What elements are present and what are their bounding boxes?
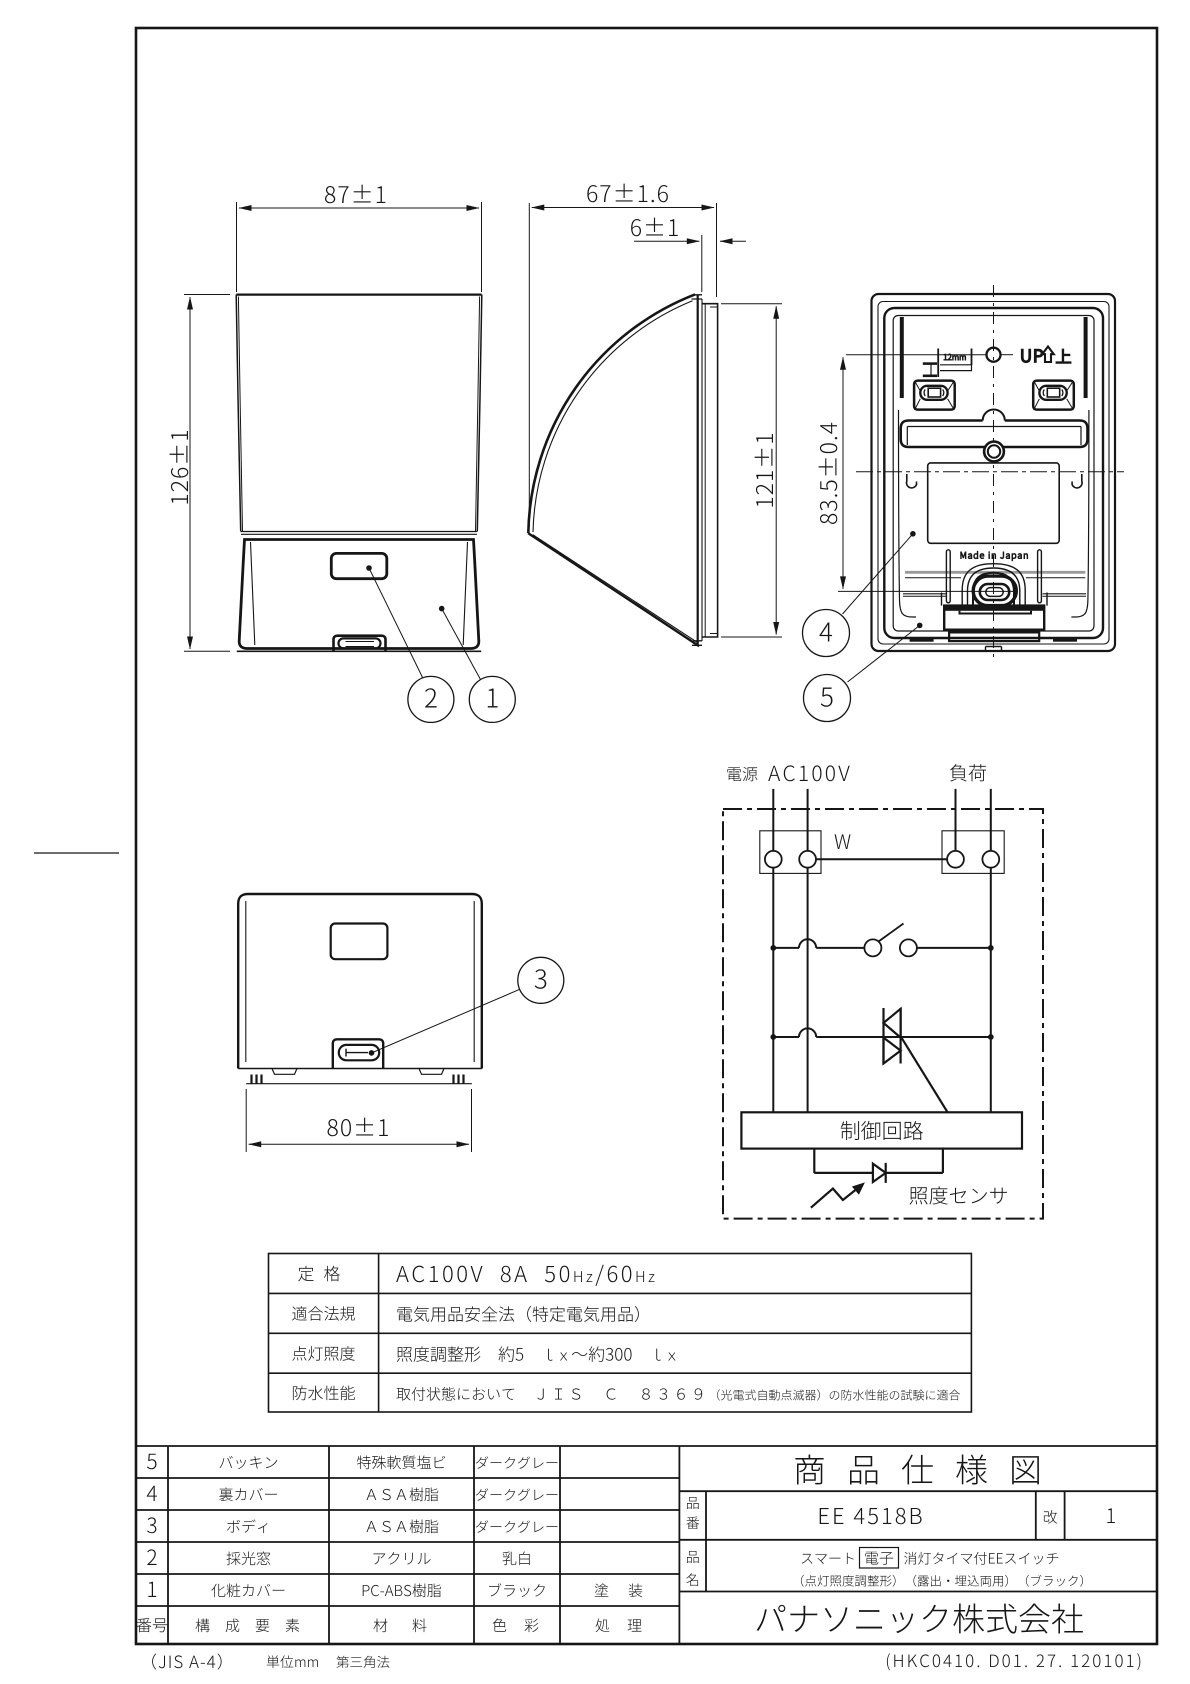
svg-text:PC-ABS樹脂: PC-ABS樹脂 (361, 1580, 442, 1601)
svg-text:取付状態において ＪＩＳ Ｃ ８３６９（光電式自動点滅器）の: 取付状態において ＪＩＳ Ｃ ８３６９（光電式自動点滅器）の防水性能の試験に適合 (396, 1384, 961, 1405)
svg-text:AC100V: AC100V (768, 758, 852, 788)
svg-text:2: 2 (424, 679, 438, 716)
svg-text:126±1: 126±1 (161, 428, 195, 505)
svg-text:5: 5 (820, 678, 834, 715)
svg-text:処理: 処理 (595, 1615, 659, 1636)
svg-text:4: 4 (146, 1478, 157, 1508)
svg-text:品: 品 (686, 1493, 700, 1513)
svg-text:（点灯照度調整形）（露出・埋込両用）（ブラック）: （点灯照度調整形）（露出・埋込両用）（ブラック） (792, 1571, 1092, 1590)
svg-text:AC100V 8A 50Hz/60Hz: AC100V 8A 50Hz/60Hz (396, 1257, 657, 1289)
svg-text:（JIS A-4）: （JIS A-4） (140, 1648, 235, 1673)
svg-text:上: 上 (1056, 344, 1072, 368)
svg-text:パナソニック株式会社: パナソニック株式会社 (754, 1593, 1084, 1641)
svg-text:ＡＳＡ樹脂: ＡＳＡ樹脂 (364, 1516, 439, 1537)
svg-text:改: 改 (1043, 1507, 1058, 1528)
svg-text:照度調整形 約5 ｌｘ〜約300 ｌｘ: 照度調整形 約5 ｌｘ〜約300 ｌｘ (396, 1341, 679, 1366)
svg-text:化粧カバー: 化粧カバー (211, 1580, 286, 1601)
svg-text:3: 3 (534, 960, 548, 997)
svg-text:適合法規: 適合法規 (291, 1301, 355, 1325)
svg-text:5: 5 (146, 1446, 157, 1476)
svg-text:構成要素: 構成要素 (195, 1615, 315, 1636)
svg-text:定格: 定格 (298, 1260, 350, 1285)
svg-text:消灯タイマ付EEスイッチ: 消灯タイマ付EEスイッチ (904, 1549, 1060, 1569)
svg-text:ダークグレー: ダークグレー (475, 1485, 559, 1505)
svg-text:6±1: 6±1 (630, 209, 681, 243)
svg-text:色彩: 色彩 (492, 1615, 556, 1636)
svg-text:採光窓: 採光窓 (226, 1548, 271, 1569)
svg-text:名: 名 (686, 1570, 700, 1590)
svg-text:防水性能: 防水性能 (291, 1380, 355, 1404)
svg-text:スマート: スマート (800, 1549, 856, 1569)
svg-text:ＡＳＡ樹脂: ＡＳＡ樹脂 (364, 1484, 439, 1505)
svg-text:67±1.6: 67±1.6 (586, 175, 670, 209)
svg-text:バッキン: バッキン (218, 1452, 278, 1473)
svg-text:12mm: 12mm (943, 352, 966, 363)
svg-text:第三角法: 第三角法 (336, 1651, 390, 1671)
svg-text:番: 番 (686, 1513, 700, 1533)
svg-text:電子: 電子 (864, 1548, 894, 1569)
svg-text:3: 3 (146, 1510, 157, 1540)
svg-text:商品仕様図: 商品仕様図 (793, 1444, 1063, 1492)
svg-text:Made in Japan: Made in Japan (960, 549, 1030, 562)
svg-text:点灯照度: 点灯照度 (291, 1341, 355, 1365)
svg-text:1: 1 (1105, 1500, 1116, 1529)
svg-text:乳白: 乳白 (502, 1548, 532, 1569)
svg-text:ブラック: ブラック (487, 1580, 547, 1601)
svg-text:1: 1 (485, 679, 499, 716)
svg-text:照度センサ: 照度センサ (909, 1180, 1009, 1209)
svg-text:121±1: 121±1 (746, 431, 780, 508)
svg-text:(HKC0410. D01. 27. 120101): (HKC0410. D01. 27. 120101) (885, 1647, 1144, 1672)
svg-text:EE 4518B: EE 4518B (817, 1499, 924, 1531)
svg-text:制御回路: 制御回路 (840, 1116, 924, 1146)
svg-text:ボディ: ボディ (226, 1516, 271, 1537)
svg-text:2: 2 (146, 1542, 157, 1572)
svg-text:W: W (834, 826, 851, 855)
svg-text:ダークグレー: ダークグレー (475, 1517, 559, 1537)
svg-text:番号: 番号 (136, 1612, 168, 1636)
svg-text:材料: 材料 (373, 1615, 451, 1636)
svg-text:80±1: 80±1 (327, 1109, 391, 1143)
svg-text:ダークグレー: ダークグレー (475, 1453, 559, 1473)
svg-text:単位mm: 単位mm (266, 1652, 319, 1672)
svg-text:アクリル: アクリル (371, 1548, 431, 1569)
svg-text:83.5±0.4: 83.5±0.4 (810, 421, 844, 525)
svg-text:電源: 電源 (726, 761, 758, 785)
svg-text:電気用品安全法（特定電気用品）: 電気用品安全法（特定電気用品） (396, 1301, 651, 1326)
svg-text:裏カバー: 裏カバー (218, 1484, 278, 1505)
svg-text:負荷: 負荷 (949, 759, 987, 786)
svg-text:塗装: 塗装 (594, 1580, 662, 1601)
svg-text:4: 4 (819, 613, 833, 650)
svg-text:特殊軟質塩ビ: 特殊軟質塩ビ (356, 1452, 446, 1473)
svg-text:87±1: 87±1 (324, 176, 388, 210)
svg-text:品: 品 (686, 1547, 700, 1567)
svg-text:1: 1 (146, 1574, 157, 1604)
